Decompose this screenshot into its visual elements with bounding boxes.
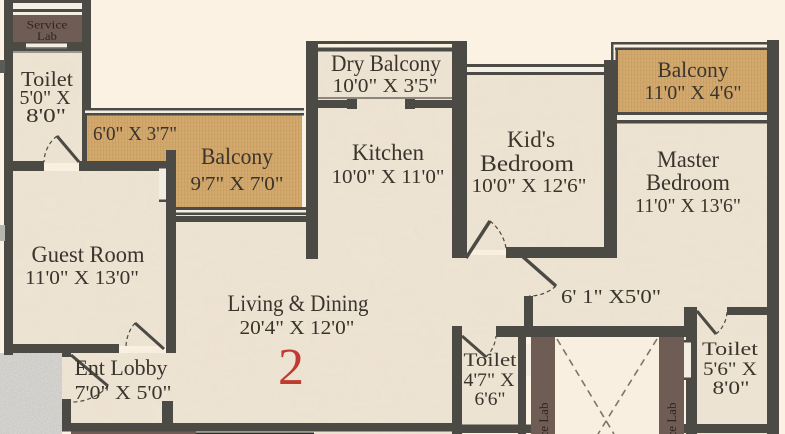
svg-text:Service Lab: Service Lab bbox=[536, 403, 551, 434]
svg-text:Dry Balcony: Dry Balcony bbox=[331, 51, 441, 76]
svg-text:2: 2 bbox=[278, 339, 304, 396]
svg-text:6'0" X 3'7": 6'0" X 3'7" bbox=[93, 123, 177, 145]
svg-text:Service: Service bbox=[27, 20, 68, 32]
svg-text:Bedroom: Bedroom bbox=[646, 170, 730, 195]
svg-text:10'0" X 3'5": 10'0" X 3'5" bbox=[333, 75, 438, 97]
svg-text:8'0": 8'0" bbox=[26, 105, 66, 127]
svg-text:6' 1" X5'0": 6' 1" X5'0" bbox=[561, 286, 661, 308]
svg-text:20'4" X 12'0": 20'4" X 12'0" bbox=[240, 317, 355, 339]
svg-text:Toilet: Toilet bbox=[702, 339, 759, 360]
svg-text:Balcony: Balcony bbox=[201, 144, 273, 169]
svg-text:Kitchen: Kitchen bbox=[352, 140, 424, 165]
svg-text:6'6": 6'6" bbox=[475, 389, 506, 410]
svg-text:Toilet: Toilet bbox=[464, 350, 518, 371]
svg-text:Lab: Lab bbox=[37, 31, 57, 43]
svg-text:11'0" X 13'6": 11'0" X 13'6" bbox=[635, 195, 741, 217]
svg-text:Living & Dining: Living & Dining bbox=[228, 291, 369, 316]
svg-text:7'0" X 5'0": 7'0" X 5'0" bbox=[75, 382, 172, 404]
svg-text:9'7" X 7'0": 9'7" X 7'0" bbox=[191, 173, 284, 195]
svg-text:Master: Master bbox=[657, 147, 719, 172]
svg-text:11'0" X 13'0": 11'0" X 13'0" bbox=[25, 267, 139, 289]
svg-text:Balcony: Balcony bbox=[658, 57, 729, 82]
svg-text:5'6" X: 5'6" X bbox=[703, 359, 757, 380]
svg-text:Ent Lobby: Ent Lobby bbox=[75, 355, 168, 380]
svg-text:10'0" X 12'6": 10'0" X 12'6" bbox=[472, 175, 587, 197]
svg-text:Guest Room: Guest Room bbox=[32, 242, 145, 267]
svg-text:Bedroom: Bedroom bbox=[480, 151, 574, 176]
svg-text:8'0": 8'0" bbox=[713, 378, 750, 399]
svg-text:10'0" X 11'0": 10'0" X 11'0" bbox=[332, 166, 445, 188]
svg-text:4'7" X: 4'7" X bbox=[464, 370, 515, 391]
svg-text:11'0" X 4'6": 11'0" X 4'6" bbox=[645, 82, 742, 104]
svg-text:Kid's: Kid's bbox=[507, 127, 555, 152]
svg-text:Service Lab: Service Lab bbox=[664, 403, 679, 434]
